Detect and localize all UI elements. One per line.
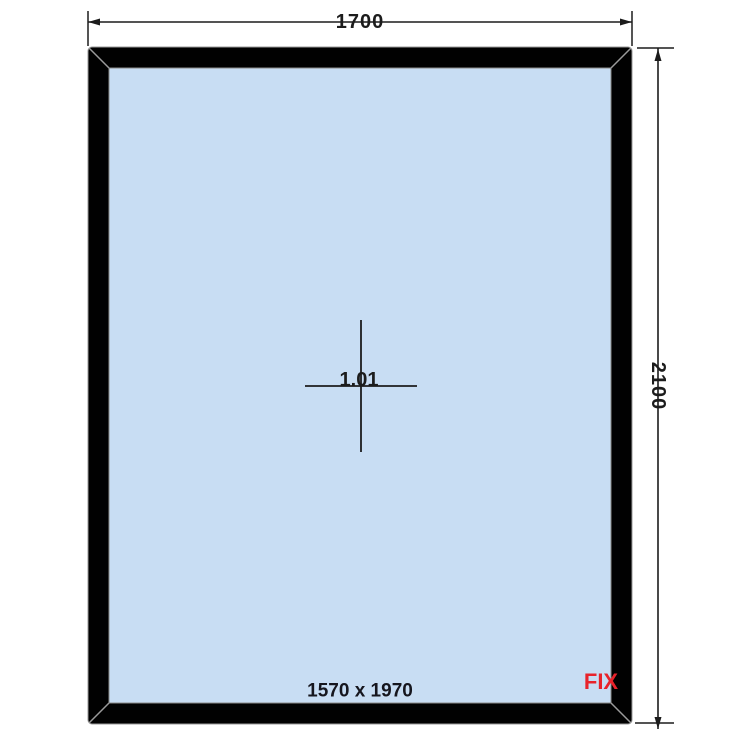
glass-size-label: 1570 x 1970 bbox=[307, 682, 413, 701]
width-dim-arrow-right bbox=[620, 19, 632, 26]
position-number-label: 1.01 bbox=[340, 370, 379, 390]
height-dim-arrow-top bbox=[655, 49, 662, 61]
width-dim-arrow-left bbox=[88, 19, 100, 26]
drawing-canvas: 1700 2100 1.01 1570 x 1970 FIX bbox=[0, 0, 750, 750]
height-dimension-label: 2100 bbox=[648, 362, 668, 411]
opening-type-label: FIX bbox=[584, 671, 618, 693]
width-dimension-label: 1700 bbox=[336, 12, 385, 32]
